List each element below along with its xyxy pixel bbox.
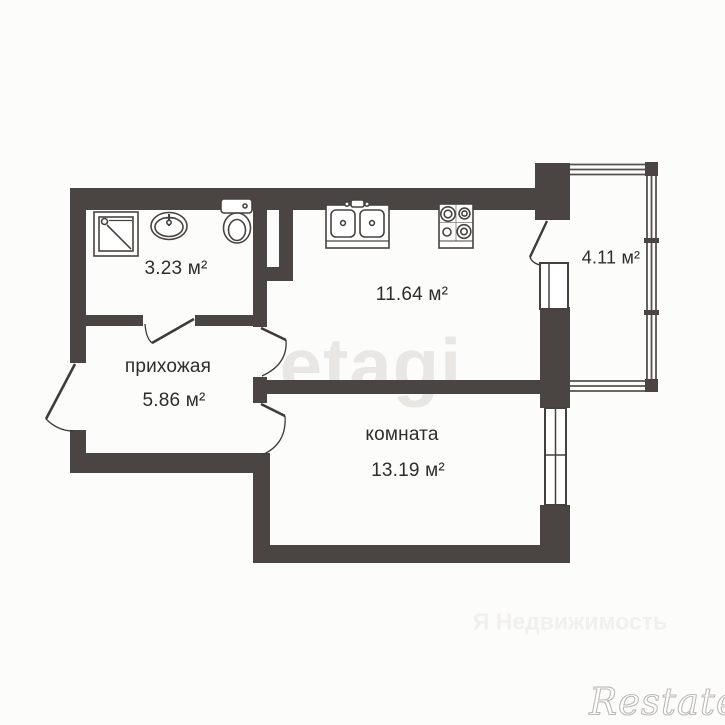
wall-segment	[267, 267, 293, 281]
glazing-tick	[644, 310, 659, 315]
door-kitchen	[261, 328, 286, 376]
balcony-area-label: 4.11 м²	[582, 248, 640, 269]
wall-segment	[253, 210, 267, 327]
glazing-post	[645, 162, 658, 176]
door-entrance	[46, 364, 75, 431]
balcony-glazing	[570, 165, 656, 392]
glazing-tick	[644, 238, 659, 243]
door-bathroom	[145, 319, 194, 343]
shower-icon	[94, 212, 138, 256]
stove-icon	[439, 204, 473, 248]
wall-segment	[70, 453, 270, 473]
bathroom-sink-icon	[151, 213, 187, 240]
door-living-room	[261, 404, 285, 455]
living-room-area-label: 13.19 м²	[371, 460, 445, 482]
wall-segment	[253, 545, 570, 563]
wall-segment	[195, 315, 267, 326]
wall-segment	[253, 380, 570, 394]
bathroom-area-label: 3.23 м²	[144, 258, 207, 280]
wall-segment	[253, 377, 267, 403]
hallway-name-label: прихожая	[125, 356, 211, 378]
window-living-room	[545, 408, 566, 505]
door-balcony	[530, 221, 547, 265]
window-kitchen-balcony	[540, 263, 568, 309]
wall-segment	[86, 315, 143, 326]
watermark-restate: Restate	[589, 681, 725, 724]
glazing-post	[645, 379, 658, 392]
toilet-icon	[221, 199, 252, 243]
kitchen-area-label: 11.64 м²	[376, 284, 448, 306]
hallway-area-label: 5.86 м²	[142, 390, 205, 412]
floor-plan: etagi	[0, 0, 725, 725]
kitchen-sink-icon	[326, 200, 389, 248]
wall-segment	[540, 505, 570, 563]
wall-segment	[535, 163, 570, 220]
wall-segment	[70, 188, 86, 363]
watermark-yandex-realty: Я Недвижимость	[473, 609, 667, 636]
living-room-name-label: комната	[365, 424, 438, 446]
